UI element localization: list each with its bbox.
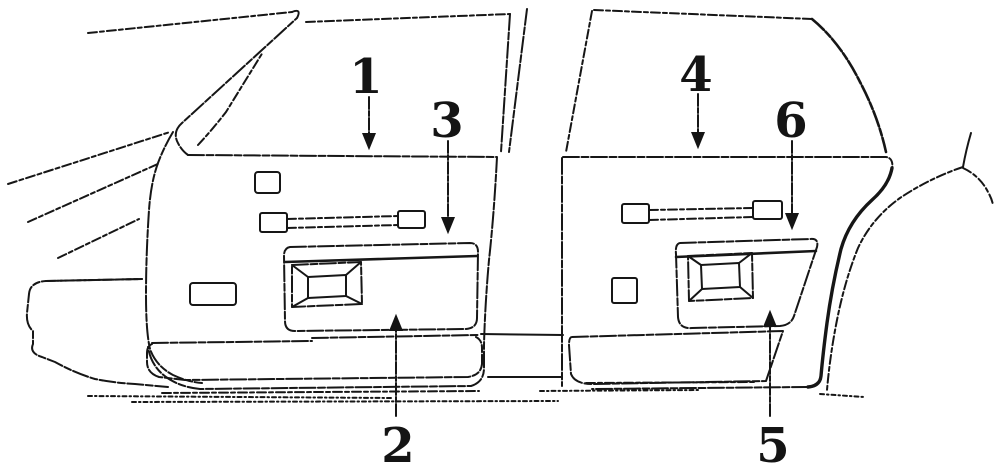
front-strap-left-cap bbox=[260, 213, 287, 232]
front-insert-outline bbox=[147, 337, 482, 380]
rear-cup-corner-3 bbox=[689, 289, 702, 301]
callout-6[interactable]: 6 bbox=[774, 93, 807, 227]
quarter-panel-crease bbox=[827, 167, 963, 390]
rear-door-top-edge bbox=[563, 157, 892, 170]
callout-3[interactable]: 3 bbox=[430, 93, 463, 231]
front-door-bottom-edge-2 bbox=[162, 391, 479, 393]
callout-3-label[interactable]: 3 bbox=[430, 93, 463, 149]
a-pillar-outer-line bbox=[176, 11, 299, 155]
rear-strap-bar-bottom bbox=[649, 217, 753, 220]
front-cup-corner-1 bbox=[292, 265, 308, 277]
c-pillar-curve bbox=[812, 19, 886, 152]
callout-2-label[interactable]: 2 bbox=[381, 418, 414, 468]
quarter-panel-branch-down bbox=[963, 168, 993, 205]
cowl-line-3 bbox=[58, 219, 139, 258]
front-pull-cup bbox=[292, 262, 362, 307]
rear-strap-bar-top bbox=[649, 208, 753, 210]
callout-1-label[interactable]: 1 bbox=[349, 49, 382, 105]
front-cup-corner-4 bbox=[346, 296, 362, 304]
callout-5[interactable]: 5 bbox=[756, 313, 789, 468]
front-insert-top-left bbox=[152, 341, 312, 343]
front-cup-inner bbox=[308, 275, 346, 298]
front-armrest bbox=[284, 243, 478, 331]
b-pillar-front-line bbox=[501, 14, 510, 152]
rocker-line-4 bbox=[820, 394, 864, 397]
rear-cup-inner bbox=[701, 263, 740, 289]
rear-window-top-line bbox=[594, 10, 812, 19]
front-strap-bar-bottom bbox=[287, 225, 398, 228]
quarter-panel-branch-up bbox=[963, 133, 971, 167]
rear-lock-knob-grommet bbox=[612, 278, 637, 303]
front-strap-bar-top bbox=[287, 216, 398, 219]
rocker-line-3 bbox=[540, 390, 700, 391]
sill-bridge-upper bbox=[481, 334, 563, 335]
callout-1[interactable]: 1 bbox=[349, 49, 382, 147]
rear-door-bottom-edge bbox=[592, 387, 808, 389]
b-pillar-rear-line bbox=[509, 9, 527, 152]
rear-armrest bbox=[676, 239, 818, 328]
rear-strap-left-cap bbox=[622, 204, 649, 223]
rear-door-pull-strap bbox=[622, 201, 782, 223]
front-armrest-top-band bbox=[285, 256, 477, 262]
callout-4-label[interactable]: 4 bbox=[679, 47, 712, 103]
rear-door-rear-edge bbox=[808, 168, 892, 387]
rear-window-front-edge bbox=[566, 11, 592, 152]
front-door-outline bbox=[148, 155, 497, 389]
front-cup-corner-2 bbox=[346, 262, 361, 275]
rocker-line-1 bbox=[88, 396, 392, 398]
front-door-handle-bezel bbox=[190, 283, 236, 305]
front-lower-carpet-insert bbox=[147, 335, 482, 380]
rear-cup-corner-4 bbox=[740, 287, 753, 298]
diagram-canvas: 1 2 3 4 5 6 bbox=[0, 0, 1000, 468]
rear-pull-cup bbox=[688, 253, 753, 301]
roof-line bbox=[88, 12, 292, 33]
front-window-top-line bbox=[306, 14, 510, 22]
callout-5-label[interactable]: 5 bbox=[756, 418, 789, 468]
front-door-front-edge bbox=[146, 132, 202, 383]
front-door-trim-panel bbox=[146, 132, 497, 393]
rear-door-trim-panel bbox=[562, 157, 892, 389]
front-door-pull-strap bbox=[260, 211, 425, 232]
rear-lower-carpet-insert bbox=[569, 331, 783, 384]
rocker-line-2 bbox=[132, 401, 558, 402]
callout-6-label[interactable]: 6 bbox=[774, 93, 807, 149]
front-lock-knob-grommet bbox=[255, 172, 280, 193]
rear-insert-outline bbox=[569, 331, 783, 384]
cowl-line-1 bbox=[8, 132, 170, 184]
rear-strap-right-cap bbox=[753, 201, 782, 219]
callout-4[interactable]: 4 bbox=[679, 47, 712, 146]
front-strap-right-cap bbox=[398, 211, 425, 228]
